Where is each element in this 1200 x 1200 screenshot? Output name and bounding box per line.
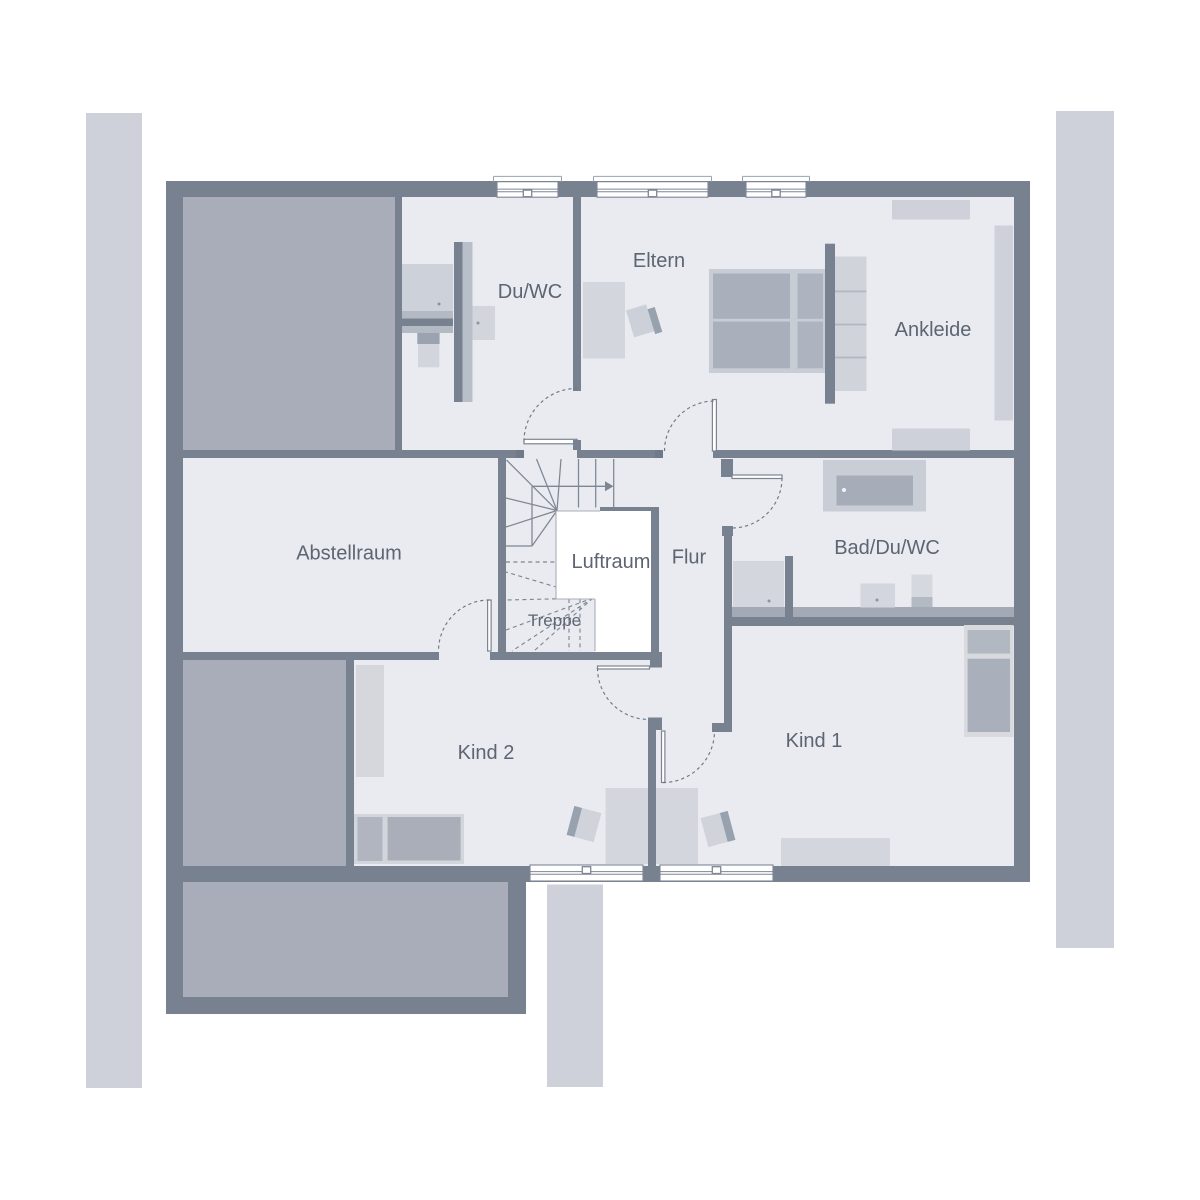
svg-text:Treppe: Treppe	[528, 611, 581, 630]
svg-text:Flur: Flur	[672, 547, 707, 569]
svg-text:Abstellraum: Abstellraum	[296, 543, 402, 565]
svg-text:Luftraum: Luftraum	[572, 551, 651, 573]
svg-text:Ankleide: Ankleide	[895, 319, 972, 341]
svg-text:Du/WC: Du/WC	[498, 281, 562, 303]
svg-text:Bad/Du/WC: Bad/Du/WC	[834, 537, 940, 559]
svg-text:Kind 2: Kind 2	[458, 742, 515, 764]
svg-text:Kind 1: Kind 1	[786, 730, 843, 752]
svg-text:Eltern: Eltern	[633, 250, 685, 272]
